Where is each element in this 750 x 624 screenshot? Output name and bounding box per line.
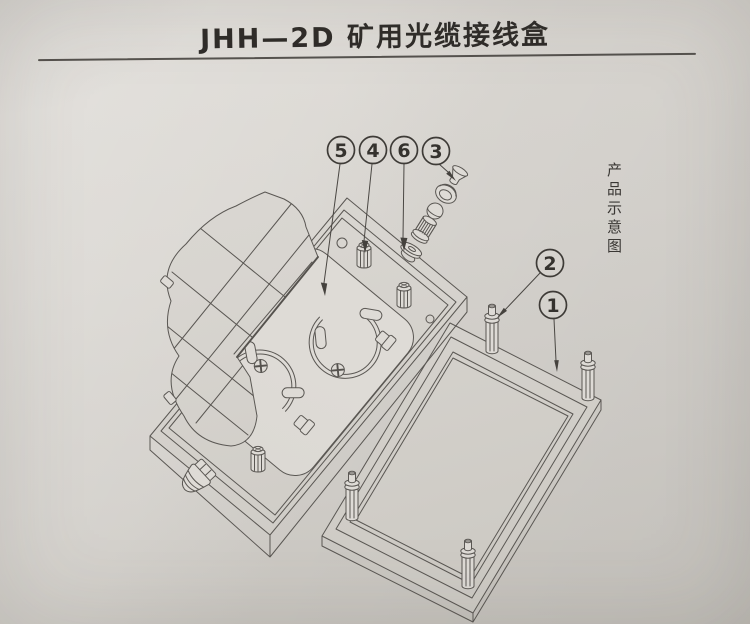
callout-4-label: 4 bbox=[366, 140, 379, 162]
callout-4-bubble: 4 bbox=[360, 137, 387, 164]
callout-2-label: 2 bbox=[543, 253, 556, 275]
callout-3-bubble: 3 bbox=[423, 138, 450, 165]
corner-post bbox=[581, 351, 595, 401]
corner-post bbox=[485, 304, 499, 354]
exploded-assembly-diagram: 5 4 6 3 2 1 bbox=[0, 0, 750, 624]
gland-cap bbox=[445, 164, 469, 188]
callout-2-bubble: 2 bbox=[537, 250, 564, 277]
leader-line-6 bbox=[403, 164, 404, 238]
photographed-page: JHH—2D 矿用光缆接线盒 产品示意图 bbox=[0, 0, 750, 624]
callout-1-bubble: 1 bbox=[540, 292, 567, 319]
callout-6-label: 6 bbox=[397, 140, 410, 162]
callout-6-bubble: 6 bbox=[391, 137, 418, 164]
leader-line-3 bbox=[439, 164, 448, 172]
cable-gland-exploded bbox=[399, 164, 469, 261]
callout-3-label: 3 bbox=[429, 141, 442, 163]
standoff-screw bbox=[251, 446, 265, 472]
standoff-screw bbox=[397, 282, 411, 308]
callout-5-bubble: 5 bbox=[328, 137, 355, 164]
callout-1-label: 1 bbox=[546, 295, 559, 317]
callout-5-label: 5 bbox=[334, 140, 347, 162]
leader-arrow-1 bbox=[554, 360, 559, 372]
leader-line-1 bbox=[554, 319, 556, 361]
leader-line-2 bbox=[503, 273, 540, 312]
